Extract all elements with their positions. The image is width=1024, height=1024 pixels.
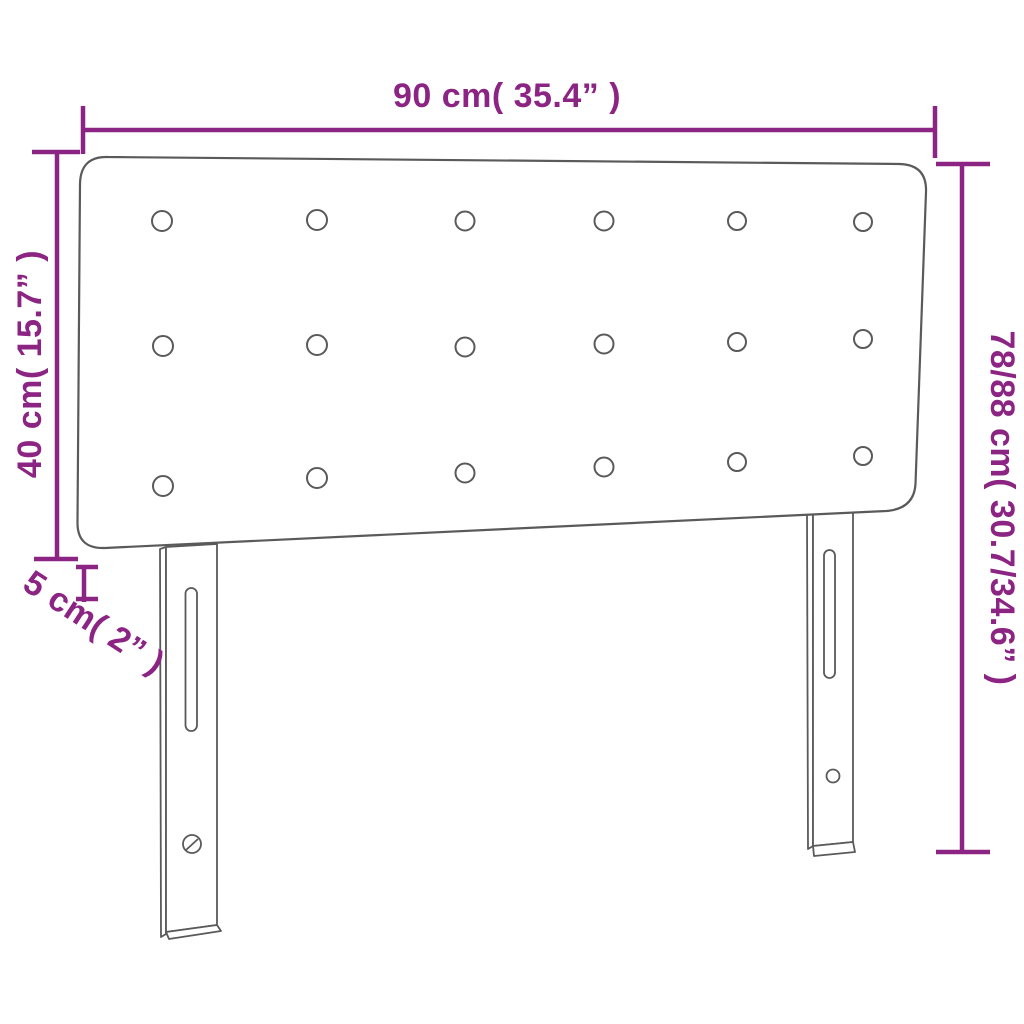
button-tuft — [456, 212, 475, 231]
button-tuft — [456, 464, 475, 483]
button-tuft — [307, 335, 327, 355]
headboard-height-label: 40 cm( 15.7” ) — [11, 250, 49, 478]
right-leg — [807, 506, 855, 856]
total-height-dimension: 78/88 cm( 30.7/34.6” ) — [936, 164, 1021, 852]
button-tuft — [307, 468, 327, 488]
button-tuft — [595, 335, 614, 354]
left-leg-front-face — [166, 544, 217, 932]
button-tuft — [307, 210, 327, 230]
depth-dimension-label: 5 cm( 2” ) — [17, 563, 172, 682]
left-leg — [160, 544, 221, 939]
button-tuft — [456, 338, 475, 357]
button-tuft — [854, 330, 872, 348]
depth-dimension: 5 cm( 2” ) — [17, 563, 172, 682]
button-tuft — [854, 447, 872, 465]
button-tuft — [153, 336, 173, 356]
headboard-dimension-diagram: 90 cm( 35.4” ) 40 cm( 15.7” ) 78/88 cm( … — [0, 0, 1024, 1024]
headboard-height-dimension: 40 cm( 15.7” ) — [11, 152, 80, 559]
button-tuft — [728, 333, 746, 351]
button-tuft — [595, 212, 614, 231]
button-tuft — [854, 213, 872, 231]
width-dimension: 90 cm( 35.4” ) — [83, 77, 935, 158]
button-tuft — [595, 458, 614, 477]
headboard-panel — [77, 157, 926, 548]
total-height-label: 78/88 cm( 30.7/34.6” ) — [983, 330, 1021, 685]
button-tuft — [728, 453, 746, 471]
button-tuft — [152, 211, 172, 231]
width-dimension-label: 90 cm( 35.4” ) — [393, 77, 621, 115]
button-tuft — [728, 212, 746, 230]
button-tuft — [153, 476, 173, 496]
